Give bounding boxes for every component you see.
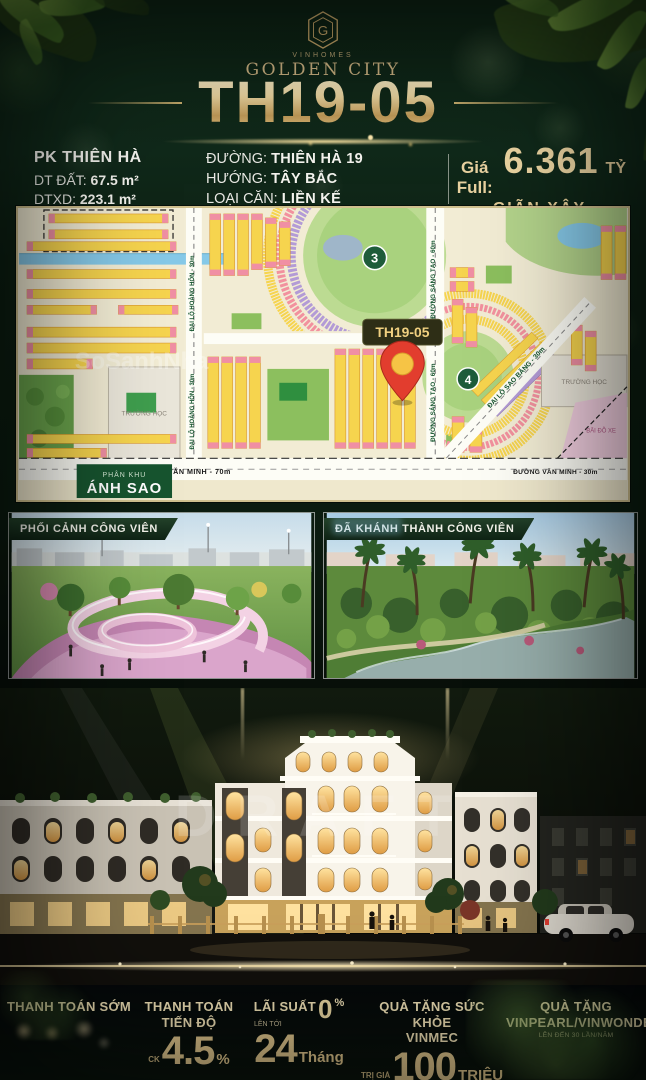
park-render-card: PHỐI CẢNH CÔNG VIÊN bbox=[8, 512, 315, 679]
subdivision-badge: PHÂN KHU ÁNH SAO bbox=[77, 464, 172, 498]
info-middle: ĐƯỜNG: THIÊN HÀ 19 HƯỚNG: TÂY BẮC LOẠI C… bbox=[206, 147, 444, 211]
promo-schedule-payment: THANH TOÁN TIẾN ĐỘ CK 4.5 % bbox=[138, 999, 240, 1070]
promo-vinmec-value-label: TRỊ GIÁ bbox=[361, 1071, 390, 1080]
promo-schedule-value: 4.5 bbox=[162, 1032, 215, 1070]
land-area-label: DT ĐẤT: bbox=[34, 172, 87, 188]
promo-vinpearl-title-2: VINPEARL/VINWONDER bbox=[506, 1015, 646, 1031]
promo-vinmec-value: 100 bbox=[392, 1048, 456, 1080]
title-line-right bbox=[454, 102, 558, 104]
unit-type-value: LIỀN KẾ bbox=[282, 191, 341, 207]
page-title: TH19-05 bbox=[198, 74, 438, 132]
promo-vinpearl: QUÀ TẶNG VINPEARL/VINWONDER LÊN ĐẾN 30 L… bbox=[506, 999, 646, 1039]
title-line-left bbox=[88, 102, 182, 104]
promo-schedule-prefix: CK bbox=[148, 1055, 160, 1064]
flyer-root: G VINHOMES GOLDEN CITY TH19-05 PK THIÊN … bbox=[0, 0, 646, 1080]
street-value: THIÊN HÀ 19 bbox=[271, 151, 363, 167]
road-label-hoang-hon-upper: ĐẠI LỘ HOÀNG HÔN - 30m bbox=[188, 255, 196, 331]
price-unit: TỶ bbox=[606, 160, 626, 178]
promo-early-payment: THANH TOÁN SỚM bbox=[0, 999, 138, 1051]
park-photo-card: ĐÃ KHÁNH THÀNH CÔNG VIÊN bbox=[323, 512, 638, 679]
promo-vinmec-title-2: VINMEC bbox=[358, 1030, 506, 1046]
price-label: Giá Full: bbox=[453, 158, 496, 198]
road-label-sang-tao-lower: ĐƯỜNG SÁNG TẠO - 60m bbox=[428, 363, 437, 442]
promo-footer: THANH TOÁN SỚM THANH TOÁN TIẾN ĐỘ CK 4.5… bbox=[0, 985, 646, 1080]
info-divider bbox=[448, 154, 449, 204]
promo-interest-zero: 0 bbox=[318, 999, 332, 1020]
promo-interest-percent: % bbox=[335, 997, 345, 1009]
promo-vinpearl-title-1: QUÀ TẶNG bbox=[506, 999, 646, 1015]
promo-vinpearl-detail: LÊN ĐẾN 30 LẦN/NĂM bbox=[506, 1032, 646, 1039]
golden-city-logo-icon: G bbox=[304, 10, 342, 50]
subdivision-badge-line2: ÁNH SAO bbox=[87, 480, 163, 497]
brand-name: VINHOMES bbox=[0, 52, 646, 59]
promo-interest-upto: LÊN TỚI bbox=[254, 1021, 358, 1028]
shophouse-render: DRAFT bbox=[0, 688, 646, 985]
direction-value: TÂY BẮC bbox=[271, 171, 337, 187]
watermark-smear bbox=[332, 517, 402, 535]
parking-label: BÃI ĐỖ XE bbox=[586, 427, 616, 434]
masterplan-svg: ĐƯỜNG VĂN MINH - 70m ĐƯỜNG VĂN MINH - 30… bbox=[18, 208, 628, 500]
promo-interest-title: LÃI SUẤT bbox=[254, 999, 316, 1015]
unit-type-label: LOẠI CĂN: bbox=[206, 191, 278, 207]
land-area-value: 67.5 m² bbox=[91, 172, 139, 188]
promo-early-payment-title: THANH TOÁN SỚM bbox=[0, 999, 138, 1015]
road-label-hoang-hon-lower: ĐẠI LỘ HOÀNG HÔN - 30m bbox=[188, 374, 196, 450]
school-label-left: TRƯỜNG HỌC bbox=[122, 409, 168, 418]
masterplan-map: ĐƯỜNG VĂN MINH - 70m ĐƯỜNG VĂN MINH - 30… bbox=[16, 206, 630, 502]
unit-callout-label: TH19-05 bbox=[375, 324, 429, 340]
promo-vinmec: QUÀ TẶNG SỨC KHỎE VINMEC TRỊ GIÁ 100 TRI… bbox=[358, 999, 506, 1080]
build-area-value: 223.1 m² bbox=[80, 191, 136, 207]
park-3-number: 3 bbox=[371, 251, 378, 266]
school-label-right: TRƯỜNG HỌC bbox=[562, 377, 608, 386]
draft-watermark: DRAFT bbox=[0, 783, 646, 850]
park-4-number: 4 bbox=[465, 373, 472, 387]
direction-label: HƯỚNG: bbox=[206, 171, 267, 187]
promo-schedule-title-2: TIẾN ĐỘ bbox=[138, 1015, 240, 1031]
subzone-name: PK THIÊN HÀ bbox=[20, 149, 206, 167]
promo-vinmec-unit: TRIỆU bbox=[458, 1067, 503, 1080]
promo-interest-months: 24 bbox=[254, 1030, 297, 1068]
road-label-van-minh-30: ĐƯỜNG VĂN MINH - 30m bbox=[513, 467, 598, 476]
svg-text:G: G bbox=[318, 23, 328, 38]
info-left: PK THIÊN HÀ DT ĐẤT: 67.5 m² DTXD: 223.1 … bbox=[20, 149, 206, 210]
title-row: TH19-05 bbox=[0, 74, 646, 132]
promo-early-payment-smudges bbox=[0, 1021, 138, 1051]
street-label: ĐƯỜNG: bbox=[206, 151, 267, 167]
promo-interest: LÃI SUẤT 0 % LÊN TỚI 24 Tháng bbox=[240, 999, 358, 1068]
promo-schedule-percent: % bbox=[216, 1051, 229, 1068]
promo-interest-months-label: Tháng bbox=[299, 1049, 344, 1066]
road-label-sang-tao-upper: ĐƯỜNG SÁNG TẠO - 60m bbox=[428, 240, 437, 319]
promo-vinmec-title-1: QUÀ TẶNG SỨC KHỎE bbox=[358, 999, 506, 1030]
price-value: 6.361 bbox=[503, 140, 598, 182]
subdivision-badge-line1: PHÂN KHU bbox=[102, 470, 146, 479]
map-watermark: SoSanhNha bbox=[75, 348, 209, 375]
park-render-label: PHỐI CẢNH CÔNG VIÊN bbox=[9, 518, 178, 540]
promo-schedule-title-1: THANH TOÁN bbox=[138, 999, 240, 1015]
build-area-label: DTXD: bbox=[34, 191, 76, 207]
